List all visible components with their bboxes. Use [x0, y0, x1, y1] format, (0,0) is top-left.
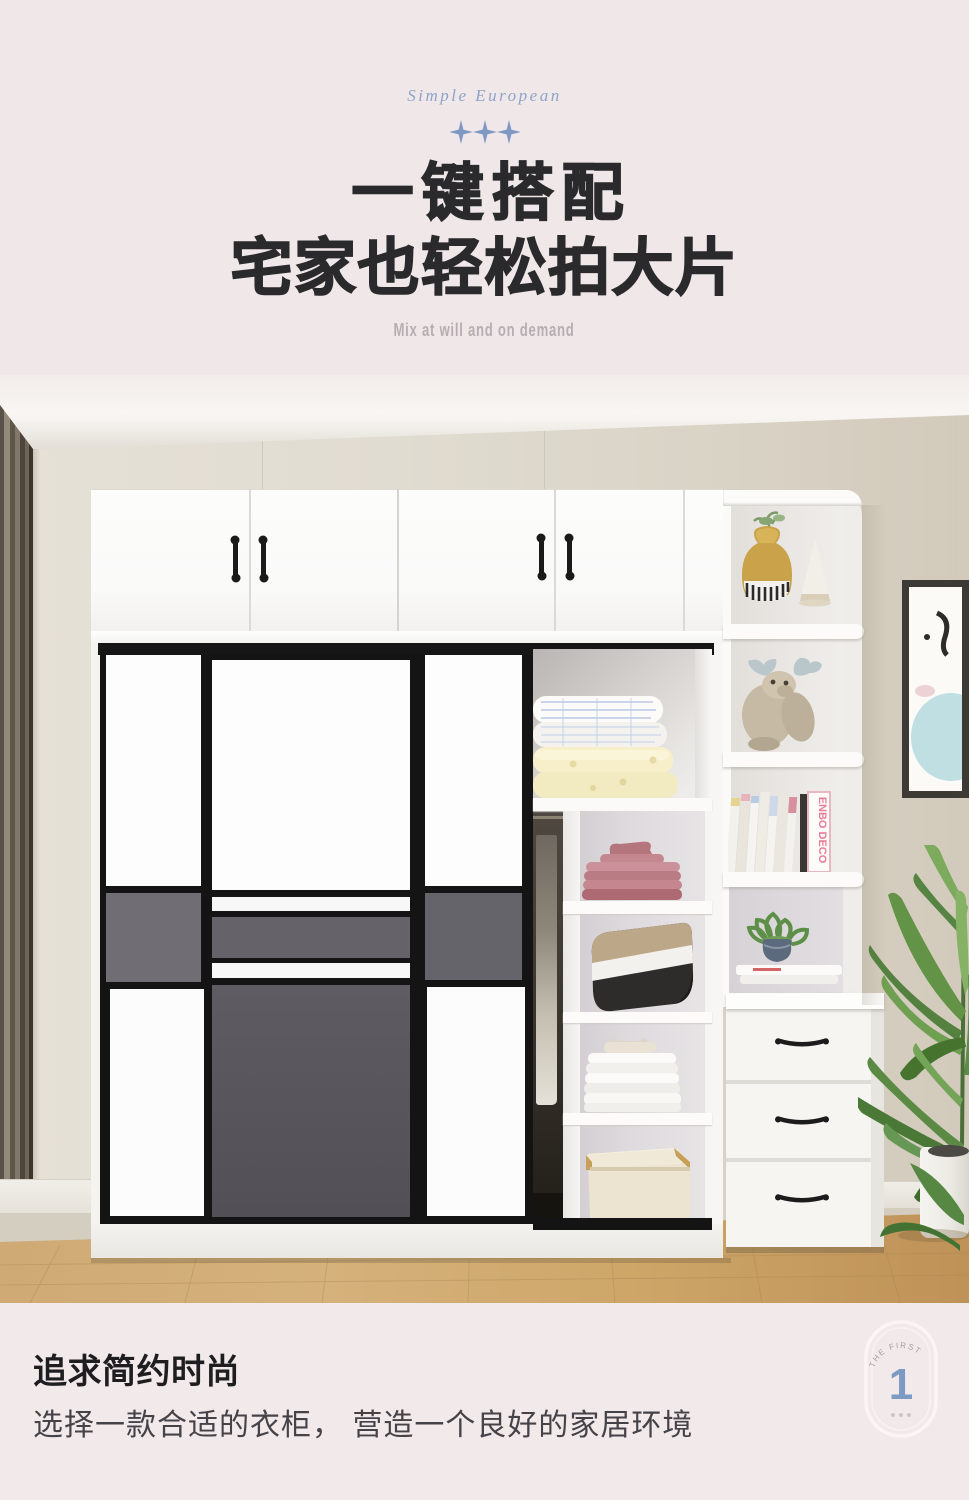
svg-text:1: 1	[889, 1360, 913, 1409]
svg-text:ENBO DECO: ENBO DECO	[816, 797, 828, 864]
